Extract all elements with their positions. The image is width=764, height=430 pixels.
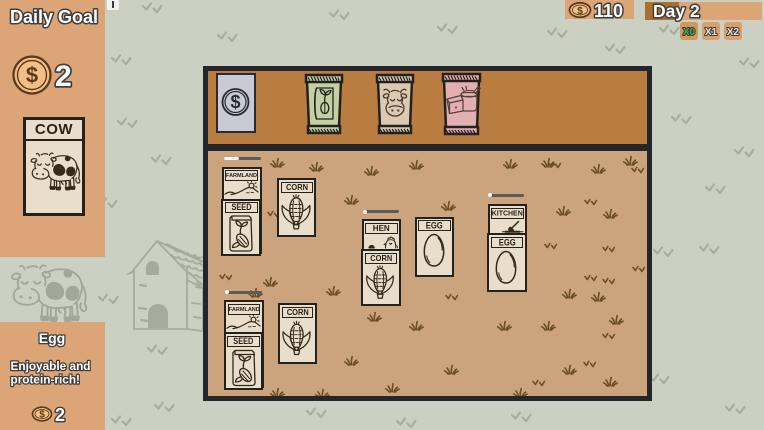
svg-text:HEN: HEN	[373, 223, 390, 233]
svg-text:FARMLAND: FARMLAND	[228, 307, 259, 313]
svg-text:X1: X1	[705, 27, 718, 38]
svg-text:EGG: EGG	[498, 237, 515, 248]
svg-text:X2: X2	[727, 27, 740, 38]
svg-text:2: 2	[55, 60, 72, 93]
svg-text:SEED: SEED	[233, 336, 253, 346]
svg-text:110: 110	[594, 1, 623, 21]
svg-text:$: $	[230, 92, 240, 112]
svg-text:$: $	[26, 63, 38, 88]
svg-text:CORN: CORN	[370, 253, 392, 263]
svg-text:KITCHEN: KITCHEN	[492, 208, 523, 217]
svg-text:Egg: Egg	[39, 330, 65, 346]
svg-text:$: $	[577, 5, 583, 17]
svg-text:$: $	[39, 410, 45, 421]
svg-text:CORN: CORN	[286, 307, 308, 317]
svg-text:protein-rich!: protein-rich!	[11, 373, 80, 387]
svg-text:2: 2	[55, 405, 65, 425]
svg-text:SEED: SEED	[231, 202, 251, 212]
svg-text:Enjoyable and: Enjoyable and	[11, 359, 91, 373]
svg-text:FARMLAND: FARMLAND	[226, 173, 257, 179]
svg-text:Day 2: Day 2	[653, 1, 700, 21]
svg-text:CORN: CORN	[286, 182, 308, 192]
svg-text:X0: X0	[683, 27, 696, 38]
svg-text:Daily Goal: Daily Goal	[10, 7, 98, 27]
svg-text:EGG: EGG	[426, 220, 443, 231]
